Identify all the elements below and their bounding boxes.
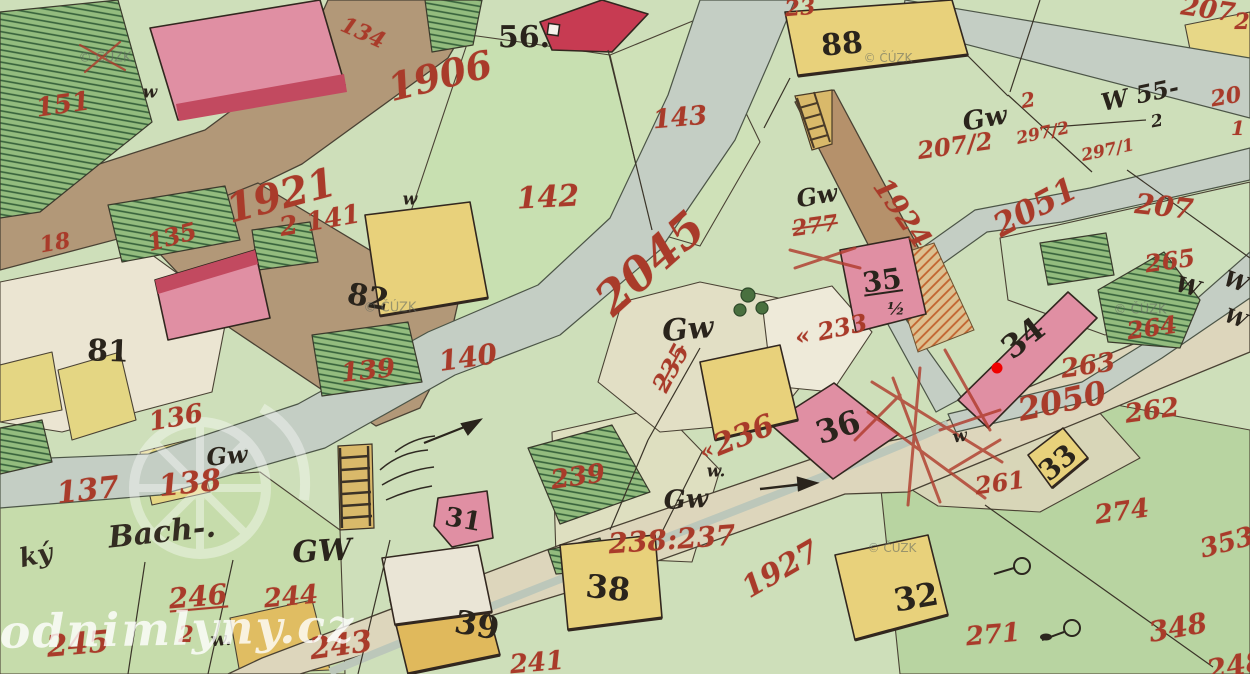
footbridge-ladder-icon bbox=[338, 444, 374, 530]
house-56-symbol-icon bbox=[547, 23, 559, 35]
building-38 bbox=[560, 535, 662, 630]
field-parcel bbox=[0, 352, 62, 422]
orchard-parcel bbox=[1040, 233, 1114, 285]
orchard-parcel bbox=[425, 0, 482, 52]
orchard-parcel-139 bbox=[312, 322, 422, 396]
building-82 bbox=[365, 202, 488, 316]
orchard-parcel bbox=[252, 222, 318, 270]
map-canvas bbox=[0, 0, 1250, 674]
mill-location-dot bbox=[992, 363, 1003, 374]
cadastral-map: 151134190614314219212 141135181401361392… bbox=[0, 0, 1250, 674]
